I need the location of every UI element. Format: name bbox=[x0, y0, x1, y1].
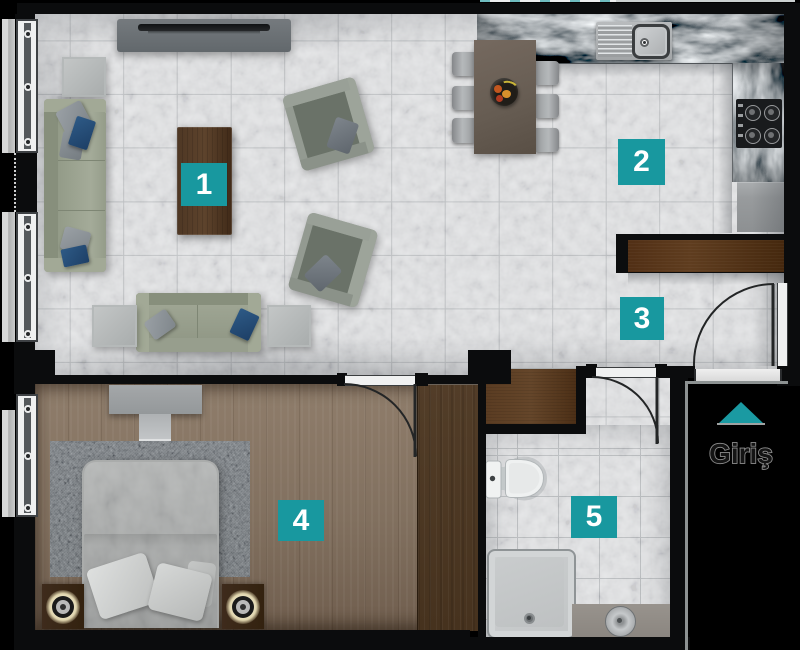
svg-text:Giriş: Giriş bbox=[709, 438, 773, 469]
